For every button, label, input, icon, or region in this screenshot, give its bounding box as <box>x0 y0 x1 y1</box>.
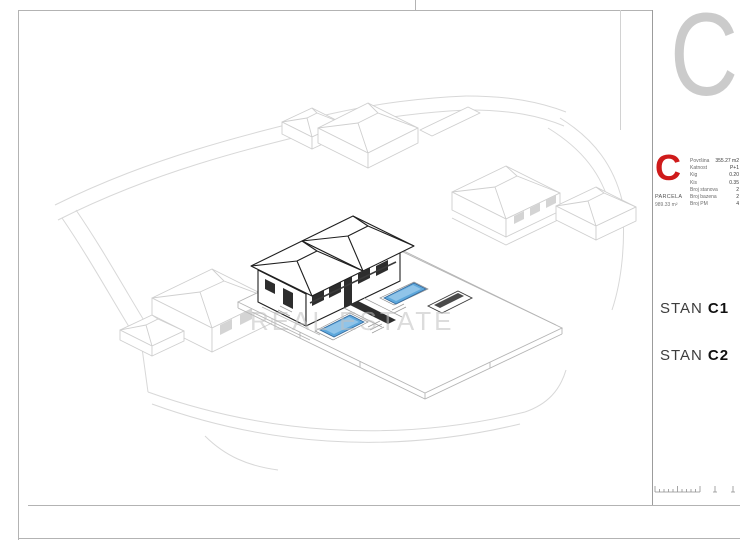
unit-prefix: STAN <box>660 300 703 317</box>
parcel-label: PARCELA <box>655 194 682 200</box>
unit-id: C1 <box>708 300 729 317</box>
stat-label: Površina <box>690 158 709 165</box>
stat-label: Katnost <box>690 165 707 172</box>
unit-label-c2: STANC2 <box>660 347 729 364</box>
stat-value: 2 <box>736 194 739 201</box>
parcel-value: 989.33 m² <box>655 202 678 208</box>
stat-value: 355.27 m2 <box>715 158 739 165</box>
watermark-text: REAL ESTATE <box>250 306 454 336</box>
stat-row: Broj stanova 2 <box>690 187 739 194</box>
stats-table: Površina 355.27 m2 Katnost P+1 Kig 0.20 … <box>690 158 739 208</box>
drawing-sheet: C <box>0 0 740 550</box>
stat-label: Broj PM <box>690 201 708 208</box>
logo-letter: C <box>655 150 681 186</box>
stat-label: Broj stanova <box>690 187 718 194</box>
unit-label-c1: STANC1 <box>660 300 729 317</box>
stat-label: Kig <box>690 172 697 179</box>
graphic-scale-bar <box>653 482 738 494</box>
stat-row: Površina 355.27 m2 <box>690 158 739 165</box>
stat-row: Broj bazena 2 <box>690 194 739 201</box>
stat-label: Broj bazena <box>690 194 717 201</box>
stat-value: 0.35 <box>729 180 739 187</box>
stat-value: 4 <box>736 201 739 208</box>
stat-row: Kis 0.35 <box>690 180 739 187</box>
title-block: C PARCELA 989.33 m² Površina 355.27 m2 K… <box>653 156 740 216</box>
stat-row: Katnost P+1 <box>690 165 739 172</box>
stat-value: P+1 <box>730 165 739 172</box>
unit-prefix: STAN <box>660 347 703 364</box>
stat-value: 2 <box>736 187 739 194</box>
stat-row: Kig 0.20 <box>690 172 739 179</box>
unit-id: C2 <box>708 347 729 364</box>
site-axonometric-drawing: REAL ESTATE <box>0 0 740 550</box>
stat-row: Broj PM 4 <box>690 201 739 208</box>
stat-label: Kis <box>690 180 697 187</box>
stat-value: 0.20 <box>729 172 739 179</box>
